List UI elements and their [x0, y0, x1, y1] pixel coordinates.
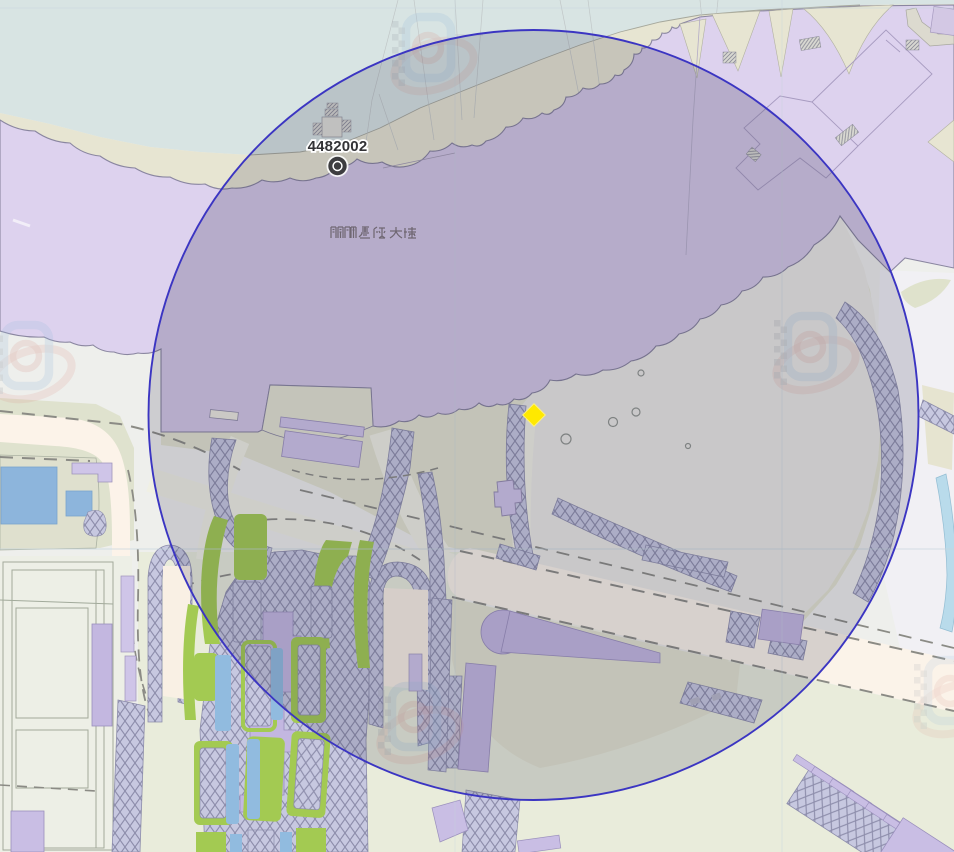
svg-text:4482002: 4482002 [308, 138, 368, 155]
